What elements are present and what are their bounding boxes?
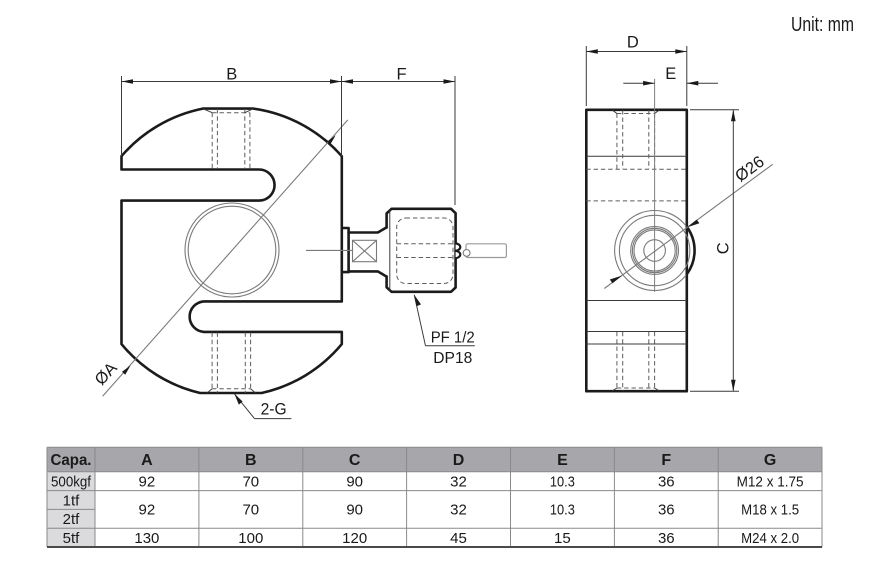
- svg-text:D: D: [453, 452, 465, 469]
- svg-text:2tf: 2tf: [63, 511, 81, 528]
- svg-text:F: F: [661, 452, 671, 469]
- svg-text:M18 x 1.5: M18 x 1.5: [741, 502, 799, 519]
- svg-text:E: E: [665, 65, 676, 83]
- svg-text:90: 90: [346, 474, 363, 491]
- svg-text:92: 92: [139, 502, 156, 519]
- svg-text:M24 x 2.0: M24 x 2.0: [741, 530, 799, 547]
- svg-text:B: B: [226, 65, 237, 83]
- svg-text:2-G: 2-G: [261, 401, 287, 419]
- svg-text:C: C: [349, 452, 361, 469]
- svg-text:DP18: DP18: [433, 350, 472, 367]
- svg-text:70: 70: [242, 474, 259, 491]
- svg-text:10.3: 10.3: [550, 502, 575, 519]
- svg-text:Unit: mm: Unit: mm: [791, 14, 854, 36]
- svg-text:1tf: 1tf: [63, 492, 81, 509]
- svg-text:36: 36: [658, 530, 675, 547]
- svg-text:70: 70: [242, 502, 259, 519]
- svg-text:45: 45: [450, 530, 467, 547]
- svg-text:36: 36: [658, 502, 675, 519]
- svg-text:A: A: [141, 452, 153, 469]
- svg-text:120: 120: [342, 530, 367, 547]
- svg-text:10.3: 10.3: [550, 474, 575, 491]
- svg-text:F: F: [397, 65, 407, 83]
- svg-text:D: D: [627, 33, 639, 51]
- svg-text:C: C: [715, 242, 733, 254]
- svg-text:32: 32: [450, 474, 467, 491]
- svg-text:36: 36: [658, 474, 675, 491]
- svg-text:M12 x 1.75: M12 x 1.75: [737, 474, 804, 491]
- svg-text:G: G: [764, 452, 776, 469]
- svg-text:Capa.: Capa.: [51, 452, 92, 469]
- svg-text:92: 92: [139, 474, 156, 491]
- svg-text:130: 130: [134, 530, 159, 547]
- svg-text:E: E: [557, 452, 568, 469]
- svg-text:PF 1/2: PF 1/2: [431, 330, 475, 347]
- svg-text:500kgf: 500kgf: [51, 474, 92, 491]
- svg-text:B: B: [245, 452, 257, 469]
- svg-text:90: 90: [346, 502, 363, 519]
- svg-text:5tf: 5tf: [63, 530, 81, 547]
- svg-text:100: 100: [238, 530, 263, 547]
- svg-text:15: 15: [554, 530, 571, 547]
- svg-text:32: 32: [450, 502, 467, 519]
